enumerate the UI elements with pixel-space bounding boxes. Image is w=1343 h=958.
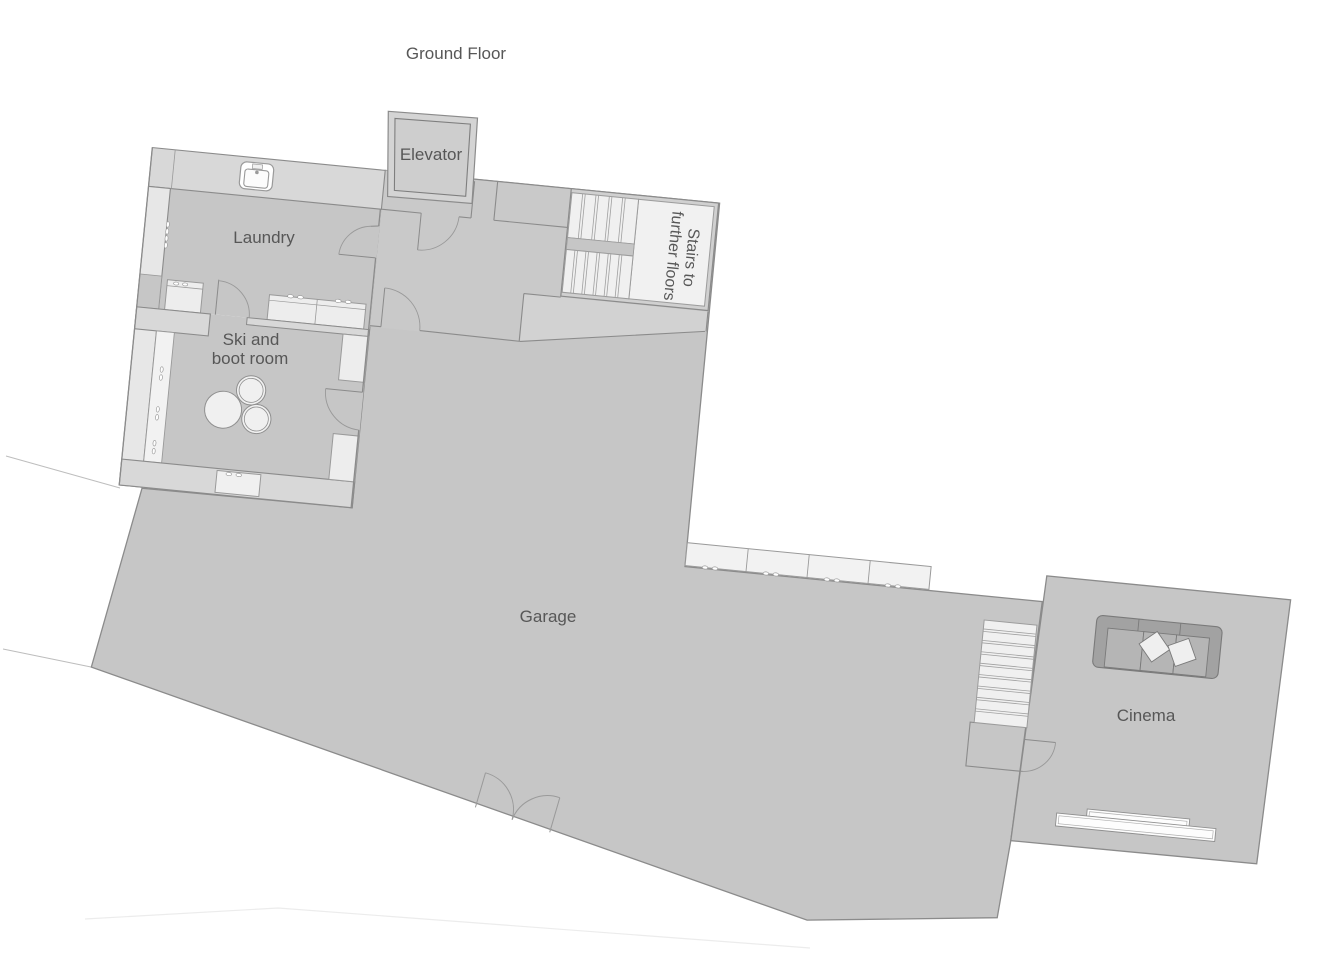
svg-text:Cinema: Cinema <box>1117 706 1176 725</box>
svg-text:Ground Floor: Ground Floor <box>406 44 506 63</box>
svg-text:Ski and: Ski and <box>223 330 280 349</box>
svg-text:Elevator: Elevator <box>400 145 463 164</box>
svg-text:boot room: boot room <box>212 349 289 368</box>
svg-text:Garage: Garage <box>520 607 577 626</box>
svg-text:Laundry: Laundry <box>233 228 295 247</box>
